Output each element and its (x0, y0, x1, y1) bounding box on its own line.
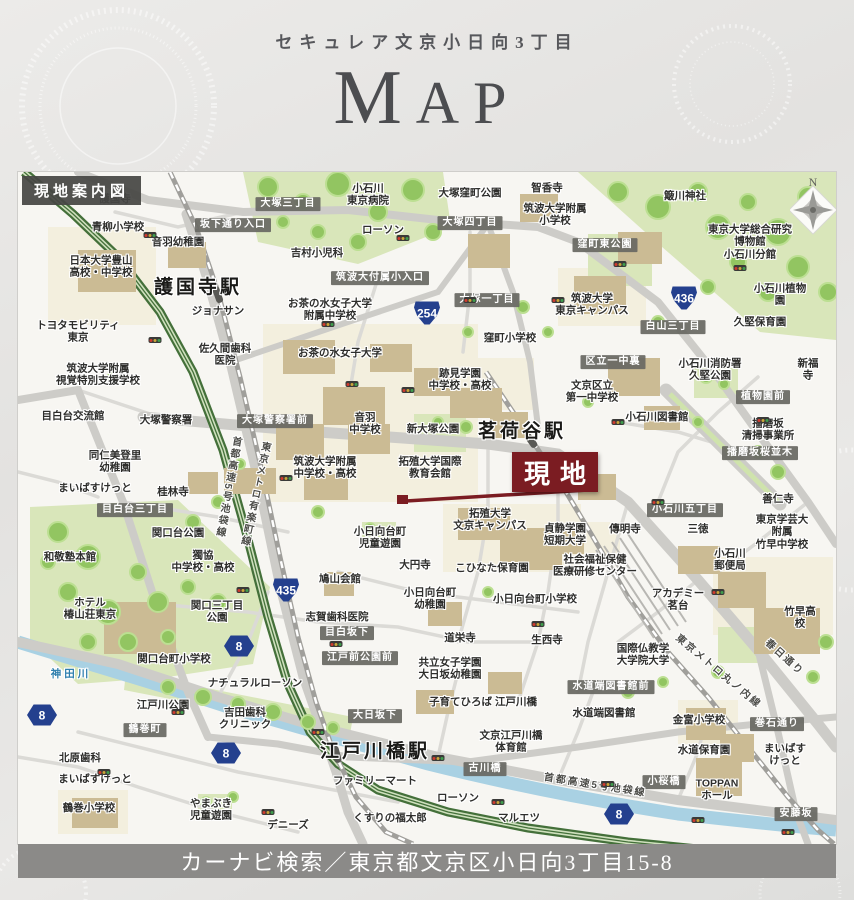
traffic-signal-icon (652, 499, 665, 505)
map-corner-title: 現地案内図 (22, 176, 141, 205)
traffic-signal-icon (492, 799, 505, 805)
traffic-signal-icon (346, 381, 359, 387)
traffic-signal-icon (757, 417, 770, 423)
traffic-signal-icon (734, 265, 747, 271)
traffic-signal-icon (172, 709, 185, 715)
traffic-signal-icon (149, 337, 162, 343)
traffic-signal-icon (144, 232, 157, 238)
site-location-square (397, 495, 408, 504)
traffic-signal-icon (612, 419, 625, 425)
traffic-signal-icon (602, 781, 615, 787)
page-title: MAP (0, 50, 854, 146)
traffic-signal-icon (330, 641, 343, 647)
traffic-signal-icon (322, 321, 335, 327)
traffic-signal-icon (464, 297, 477, 303)
traffic-signal-icon (262, 809, 275, 815)
traffic-signal-icon (312, 729, 325, 735)
navi-search-bar: カーナビ検索／東京都文京区小日向3丁目15-8 (18, 844, 836, 878)
traffic-signal-icon (237, 587, 250, 593)
map-panel: 護国寺青柳小学校音羽幼稚園日本大学豊山 高校・中学校護国寺駅ジョナサントヨタモビ… (18, 172, 836, 844)
traffic-signal-icon (782, 829, 795, 835)
traffic-signal-icon (712, 589, 725, 595)
compass-n-label: N (809, 175, 818, 189)
traffic-signal-icon (280, 475, 293, 481)
traffic-signal-icon (552, 297, 565, 303)
traffic-signal-icon (397, 235, 410, 241)
traffic-signal-icon (532, 621, 545, 627)
traffic-signal-icon (432, 755, 445, 761)
traffic-signal-icon (614, 261, 627, 267)
map-base-svg (18, 172, 836, 844)
traffic-signal-icon (402, 387, 415, 393)
compass-icon: N (790, 174, 836, 236)
site-marker: 現地 (512, 452, 598, 492)
traffic-signal-icon (692, 817, 705, 823)
traffic-signal-icon (98, 769, 111, 775)
